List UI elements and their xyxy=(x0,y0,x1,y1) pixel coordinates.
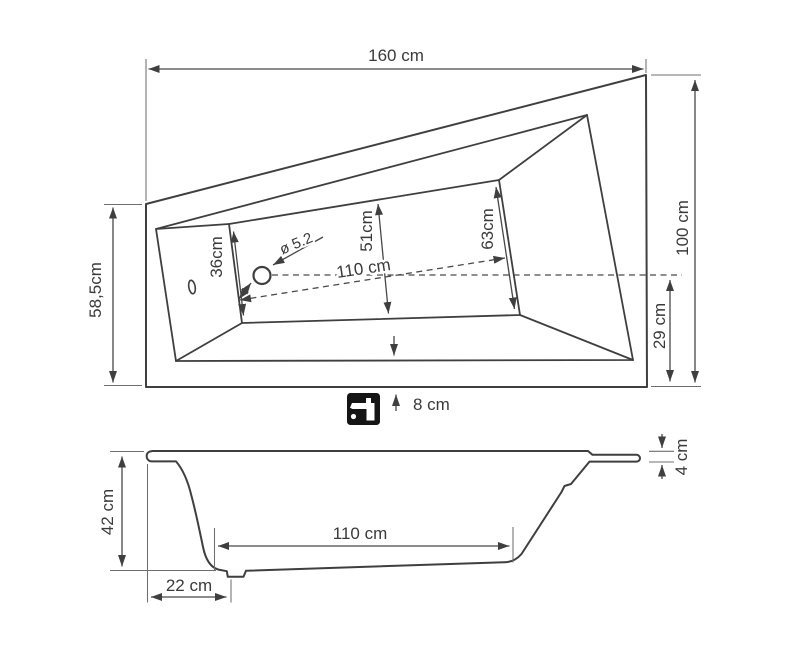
dim-label-basin-diagonal: 110 cm xyxy=(335,255,392,282)
dim-label-basin-width-middle: 51cm xyxy=(357,210,376,252)
drawing-page: 160 cm 100 cm 29 cm 58,5cm 36cm 51cm 63c… xyxy=(0,0,800,650)
wall-edge-bottom-left xyxy=(176,323,242,361)
dim-label-overall-length: 160 cm xyxy=(368,46,424,65)
top-view: 160 cm 100 cm 29 cm 58,5cm 36cm 51cm 63c… xyxy=(86,46,701,425)
dim-label-drain-diameter: ø 5.2 xyxy=(277,229,315,258)
dim-label-overall-width: 100 cm xyxy=(673,200,692,256)
dim-label-basin-width-head: 36cm xyxy=(207,236,226,278)
tub-outer-edge xyxy=(146,75,647,387)
dim-label-basin-width-foot: 63cm xyxy=(478,208,497,250)
dim-basin-width-foot xyxy=(496,187,515,309)
dim-label-drain-axis-to-edge: 29 cm xyxy=(650,303,669,349)
drain-hole xyxy=(254,267,271,284)
dim-label-tub-height: 42 cm xyxy=(98,489,117,535)
tub-inner-rim xyxy=(156,115,633,361)
side-view: 42 cm 110 cm 22 cm 4 cm xyxy=(98,434,691,603)
dim-label-rim-height: 4 cm xyxy=(672,439,691,476)
tub-side-profile xyxy=(147,451,640,577)
dim-label-left-edge-width: 58,5cm xyxy=(86,262,105,318)
wall-edge-top-right xyxy=(499,115,587,180)
dim-label-bottom-length: 110 cm xyxy=(333,524,388,543)
dim-label-faucet-offset: 8 cm xyxy=(413,395,450,414)
overflow-hole xyxy=(188,280,197,295)
bathtub-technical-drawing: 160 cm 100 cm 29 cm 58,5cm 36cm 51cm 63c… xyxy=(0,0,800,650)
dim-label-drain-from-edge: 22 cm xyxy=(166,576,212,595)
faucet-icon xyxy=(347,393,380,425)
wall-edge-bottom-right xyxy=(520,315,633,360)
